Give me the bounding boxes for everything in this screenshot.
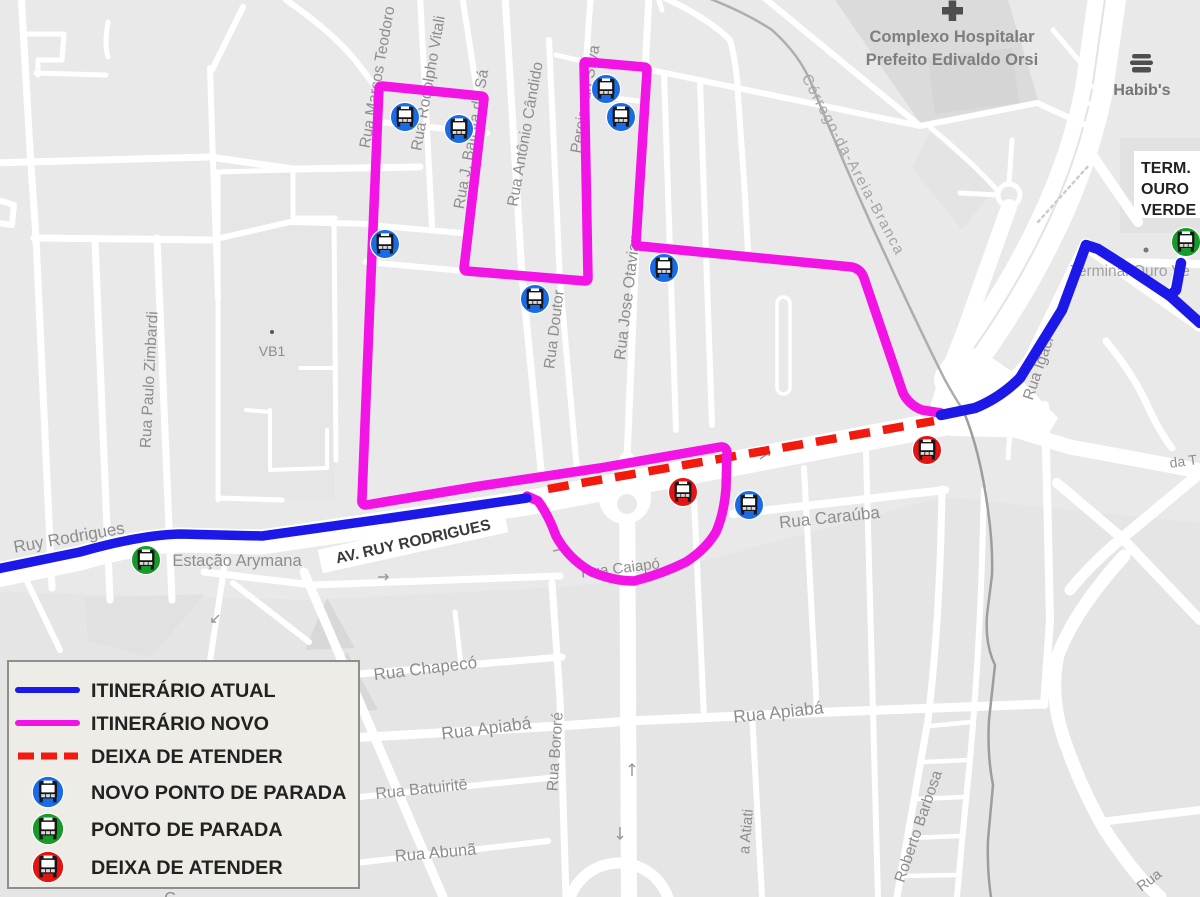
svg-text:VB1: VB1 xyxy=(259,343,286,359)
svg-text:TERM.: TERM. xyxy=(1141,160,1191,177)
svg-text:ITINERÁRIO NOVO: ITINERÁRIO NOVO xyxy=(91,712,269,735)
svg-text:NOVO PONTO DE PARADA: NOVO PONTO DE PARADA xyxy=(91,782,346,804)
svg-text:ITINERÁRIO ATUAL: ITINERÁRIO ATUAL xyxy=(91,679,276,702)
svg-text:Complexo Hospitalar: Complexo Hospitalar xyxy=(869,28,1035,46)
svg-text:Prefeito Edivaldo Orsi: Prefeito Edivaldo Orsi xyxy=(866,51,1038,69)
svg-text:PONTO DE PARADA: PONTO DE PARADA xyxy=(91,819,283,841)
svg-text:OURO: OURO xyxy=(1141,181,1189,198)
svg-text:Estação Arymana: Estação Arymana xyxy=(172,552,302,570)
svg-text:DEIXA DE ATENDER: DEIXA DE ATENDER xyxy=(91,857,283,879)
svg-text:Habib's: Habib's xyxy=(1113,82,1170,99)
svg-text:C: C xyxy=(164,890,176,897)
svg-text:DEIXA DE ATENDER: DEIXA DE ATENDER xyxy=(91,746,283,768)
svg-text:VERDE: VERDE xyxy=(1141,202,1196,219)
